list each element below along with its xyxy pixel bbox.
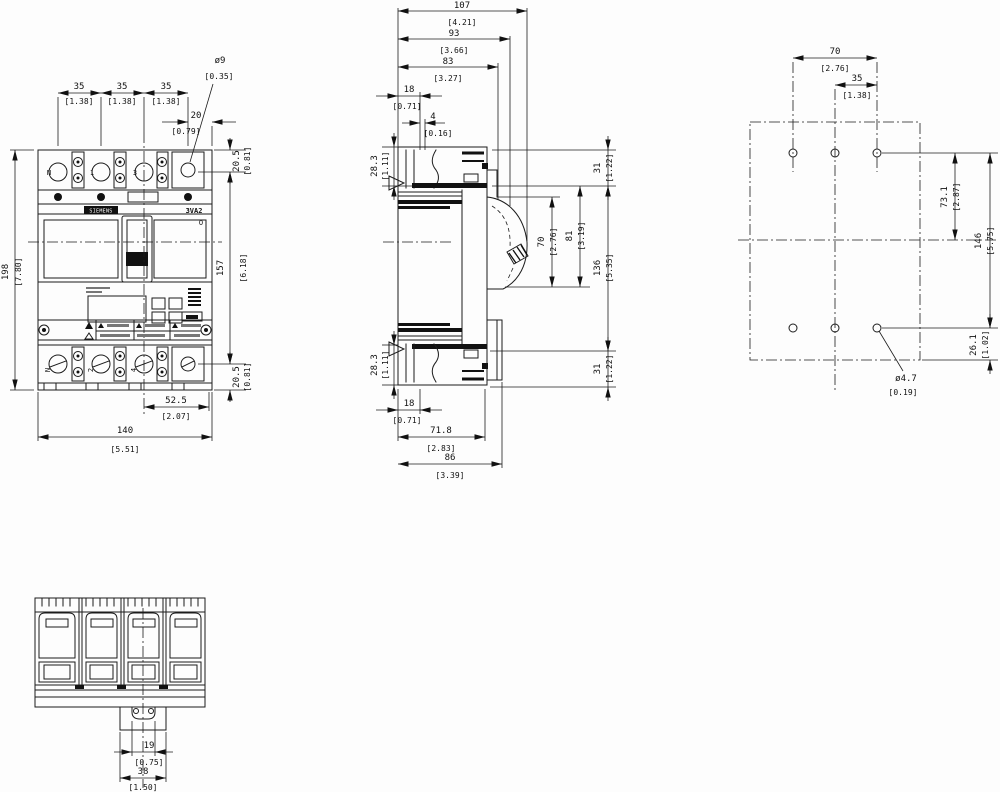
dim-label-in: [0.81] <box>243 363 252 392</box>
dim-label: 83 <box>443 57 454 67</box>
terminal-label: 4 <box>130 368 138 372</box>
terminal-label: 3 <box>133 169 137 177</box>
dim-label-in: [0.19] <box>889 388 918 397</box>
front-view-body: N 1 3 SIEMENS 3VA2 O <box>28 132 222 414</box>
front-warning-strip <box>39 320 211 340</box>
dim-label: 35 <box>74 82 85 92</box>
side-view-body <box>383 147 528 385</box>
dim-label-in: [1.50] <box>129 783 158 792</box>
dim-label: 20.5 <box>232 150 242 172</box>
dim-label-in: [5.51] <box>111 445 140 454</box>
dim-label: 31 <box>593 364 603 375</box>
model-text: 3VA2 <box>186 207 203 215</box>
warning-triangle-icon <box>85 322 93 329</box>
dim-label-in: [0.16] <box>424 129 453 138</box>
dim-label: 20.5 <box>232 366 242 388</box>
dim-label: 71.8 <box>430 426 452 436</box>
dim-label: 136 <box>593 260 603 276</box>
dim-label-in: [1.22] <box>605 355 614 384</box>
dimension-drawing-sheet: N 1 3 SIEMENS 3VA2 O <box>0 0 1000 792</box>
drill-hole <box>789 324 797 332</box>
dim-label-in: [1.02] <box>981 331 990 360</box>
dim-label-in: [1.11] <box>381 152 390 181</box>
dim-label-in: [1.22] <box>605 154 614 183</box>
dim-label: 28.3 <box>370 155 380 177</box>
terminal-label: N <box>44 368 52 372</box>
dim-label: 35 <box>852 74 863 84</box>
front-bottom-terminals: N 2 4 <box>44 347 204 381</box>
terminal-label: 1 <box>90 169 94 177</box>
dim-label-in: [5.75] <box>986 227 995 256</box>
bottom-view: 19 [0.75] 38 [1.50] <box>35 598 205 792</box>
front-top-terminals: N 1 3 <box>47 152 204 188</box>
dim-label-in: [2.76] <box>821 64 850 73</box>
brand-text: SIEMENS <box>89 208 112 214</box>
dim-label: 140 <box>117 426 133 436</box>
dim-label-in: [1.38] <box>152 97 181 106</box>
warning-triangle-icon <box>85 333 93 339</box>
dim-label-in: [1.38] <box>843 91 872 100</box>
release-lever <box>389 342 404 356</box>
dim-label: 31 <box>593 163 603 174</box>
dim-label-in: [4.21] <box>448 18 477 27</box>
dim-label-in: [5.35] <box>605 254 614 283</box>
terminal-label: 2 <box>87 368 95 372</box>
dim-label-in: [1.11] <box>381 351 390 380</box>
din-bracket <box>487 320 502 380</box>
dim-label: 38 <box>138 767 149 777</box>
bottom-dimensions: 19 [0.75] 38 [1.50] <box>114 721 173 792</box>
dim-label: 146 <box>974 233 984 249</box>
dim-label-in: [0.81] <box>243 147 252 176</box>
dim-label-in: [0.71] <box>393 102 422 111</box>
dim-label: 70 <box>830 47 841 57</box>
dim-label-in: [2.07] <box>162 412 191 421</box>
dimension-drawing: N 1 3 SIEMENS 3VA2 O <box>0 0 1000 792</box>
toggle-grip <box>126 252 148 266</box>
dim-label-in: [3.19] <box>577 222 586 251</box>
dim-label: 198 <box>1 264 11 280</box>
dim-label: 18 <box>404 399 415 409</box>
dim-label-in: [1.38] <box>108 97 137 106</box>
drill-dimensions: 70 [2.76] 35 [1.38] 73.1 [2.87] 146 [5.7… <box>793 47 998 397</box>
mounting-hole-top <box>181 163 195 177</box>
dim-label-in: [3.66] <box>440 46 469 55</box>
release-lever <box>389 176 404 190</box>
barcode <box>188 304 201 306</box>
dim-label: 28.3 <box>370 354 380 376</box>
dim-label-in: [0.75] <box>135 758 164 767</box>
dim-label: 18 <box>404 85 415 95</box>
dim-label: 20 <box>191 111 202 121</box>
drill-hole <box>873 324 881 332</box>
dim-label: ø4.7 <box>895 374 917 384</box>
dim-label: 107 <box>454 1 470 11</box>
dim-label: 4 <box>430 112 435 122</box>
dim-label-in: [1.38] <box>65 97 94 106</box>
dim-label: ø9 <box>215 56 226 66</box>
dim-label-in: [6.18] <box>239 254 248 283</box>
dim-label: 93 <box>449 29 460 39</box>
dim-label: 86 <box>445 453 456 463</box>
dim-label: 35 <box>161 82 172 92</box>
side-view: 107 [4.21] 93 [3.66] 83 [3.27] 18 [0.71]… <box>370 1 616 480</box>
dim-label: 70 <box>537 237 547 248</box>
dim-label-in: [2.76] <box>549 228 558 257</box>
dim-label-in: [0.71] <box>393 416 422 425</box>
dim-label-in: [7.80] <box>14 258 23 287</box>
dim-label: 19 <box>144 741 155 751</box>
dim-label: 81 <box>565 231 575 242</box>
dim-label: 73.1 <box>940 186 950 208</box>
terminal-label: N <box>47 169 51 177</box>
dim-label-in: [3.39] <box>436 471 465 480</box>
front-view: N 1 3 SIEMENS 3VA2 O <box>1 56 252 454</box>
drilling-plan: 70 [2.76] 35 [1.38] 73.1 [2.87] 146 [5.7… <box>738 47 998 397</box>
dim-label: 26.1 <box>969 334 979 356</box>
dim-label-in: [0.35] <box>205 72 234 81</box>
dim-label-in: [3.27] <box>434 74 463 83</box>
dim-label-in: [2.87] <box>952 183 961 212</box>
dim-label-in: [2.83] <box>427 444 456 453</box>
side-handle <box>487 170 528 289</box>
side-dimensions: 107 [4.21] 93 [3.66] 83 [3.27] 18 [0.71]… <box>370 1 616 480</box>
front-toggle-area: O <box>44 216 206 282</box>
dim-label: 52.5 <box>165 396 187 406</box>
dim-label: 157 <box>216 260 226 276</box>
off-symbol: O <box>199 219 203 227</box>
dim-label: 35 <box>117 82 128 92</box>
vent-slots <box>42 598 198 606</box>
dim-label-in: [0.79] <box>172 127 201 136</box>
